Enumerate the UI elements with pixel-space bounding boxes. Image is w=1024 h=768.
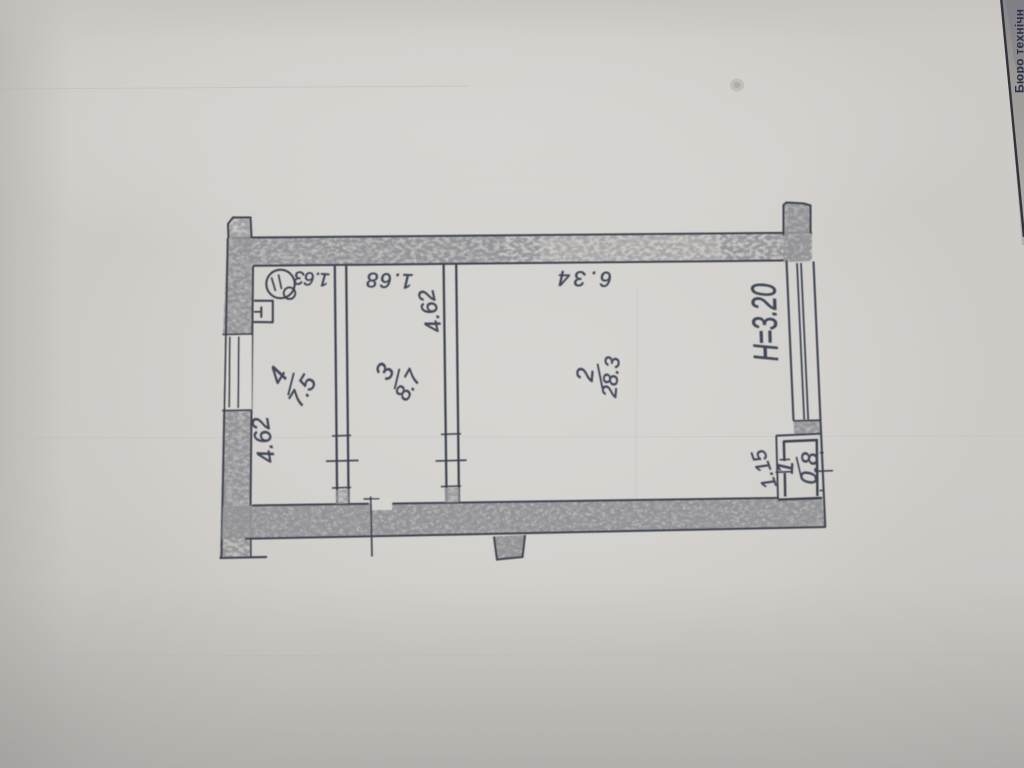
svg-text:6.34: 6.34 xyxy=(554,266,612,291)
svg-text:2: 2 xyxy=(571,367,599,384)
svg-text:28.3: 28.3 xyxy=(598,355,625,399)
svg-text:Бюро технічн: Бюро технічн xyxy=(1013,9,1024,93)
svg-text:1.63: 1.63 xyxy=(293,266,330,289)
svg-text:Н=3.20: Н=3.20 xyxy=(745,282,786,362)
svg-text:1.68: 1.68 xyxy=(365,268,414,293)
svg-text:0.8: 0.8 xyxy=(795,452,822,485)
